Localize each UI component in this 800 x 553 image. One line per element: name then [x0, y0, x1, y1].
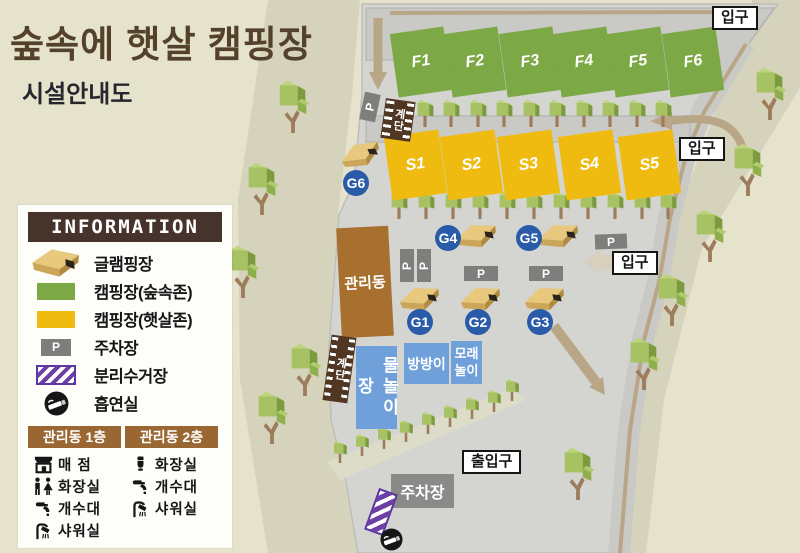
- parking-sign: P: [464, 266, 498, 281]
- sun-site-S3: S3: [497, 129, 560, 200]
- glamping-badge-G2: G2: [465, 309, 491, 335]
- campground-facility-map-page: 숲속에 햇살 캠핑장 시설안내도 INFORMATION 글램핑장 캠핑장(숲속…: [0, 0, 800, 553]
- glamping-badge-G1: G1: [407, 309, 433, 335]
- forest-site-F3: F3: [499, 27, 561, 98]
- parking-sign: P: [417, 249, 431, 282]
- forest-site-F6: F6: [662, 27, 724, 98]
- glamping-badge-G5: G5: [516, 225, 542, 251]
- glamping-badge-G3: G3: [527, 309, 553, 335]
- parking-sign: P: [529, 266, 563, 281]
- management-building: 관리동: [336, 226, 394, 339]
- map-overlay: F1F2F3F4F5F6S1S2S3S4S5G1G2G3G4G5G6관리동PPP…: [0, 0, 800, 553]
- exit-entrance-label: 출입구: [462, 450, 521, 474]
- sun-site-S5: S5: [618, 129, 681, 200]
- forest-site-F5: F5: [607, 27, 669, 98]
- stairs-icon: 계단: [380, 98, 415, 142]
- parking-sign: P: [595, 233, 628, 249]
- glamping-badge-G6: G6: [343, 170, 369, 196]
- sun-site-S2: S2: [440, 129, 503, 200]
- forest-site-F2: F2: [444, 27, 506, 98]
- entrance-label-1: 입구: [679, 137, 725, 161]
- entrance-label-2: 입구: [612, 251, 658, 275]
- parking-sign: P: [359, 92, 380, 123]
- parking-sign: P: [400, 249, 414, 282]
- forest-site-F1: F1: [390, 27, 452, 98]
- facility-sand-play: 모래놀이: [451, 341, 482, 384]
- facility-trampoline: 방방이: [404, 343, 449, 384]
- sun-site-S1: S1: [384, 129, 447, 200]
- sun-site-S4: S4: [558, 129, 621, 200]
- facility-water-play: 물놀이장: [356, 346, 397, 429]
- parking-lot: 주차장: [391, 474, 454, 508]
- smoking-area-icon: [380, 528, 403, 553]
- entrance-label-0: 입구: [712, 6, 758, 30]
- glamping-badge-G4: G4: [435, 225, 461, 251]
- forest-site-F4: F4: [553, 27, 615, 98]
